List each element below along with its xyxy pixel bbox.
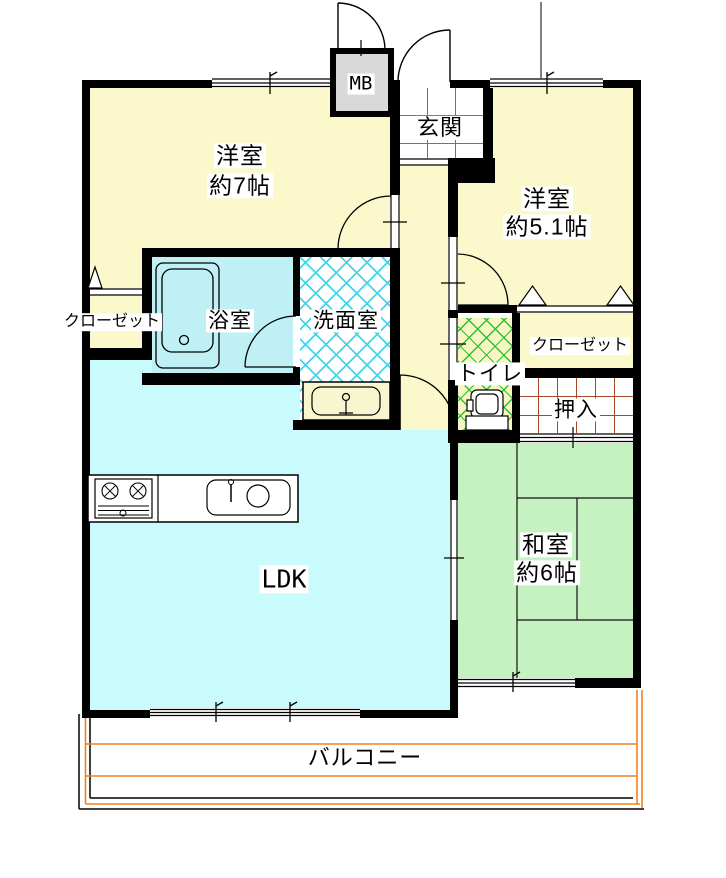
wall-ldk-japanese-2 bbox=[450, 620, 458, 678]
label-japanese-name: 和室 bbox=[520, 532, 572, 557]
wall-japanese-top bbox=[448, 430, 520, 443]
oshiire-fusuma-band bbox=[520, 433, 633, 443]
wall-left bbox=[82, 80, 90, 718]
closet-right-door-band bbox=[517, 305, 633, 313]
label-closet-right: クローゼット bbox=[530, 337, 630, 355]
room-western7-floor-arm bbox=[90, 248, 142, 288]
wall-bath-left bbox=[142, 248, 152, 360]
wall-ldk-bottom-right bbox=[360, 710, 458, 718]
label-meter-box: MB bbox=[348, 74, 375, 95]
label-entrance: 玄関 bbox=[415, 116, 465, 140]
label-toilet: トイレ bbox=[455, 362, 525, 385]
floorplan: 洋室 約7帖 MB 玄関 洋室 約5.1帖 クローゼット 浴室 洗面室 トイレ … bbox=[0, 0, 726, 878]
wall-right bbox=[633, 80, 641, 688]
wall-bath-bottom bbox=[142, 373, 300, 385]
label-western7-name: 洋室 bbox=[214, 143, 266, 168]
wall-japanese-bottom bbox=[575, 678, 641, 688]
entrance-step bbox=[400, 158, 448, 166]
wall-corridor-right-2 bbox=[448, 310, 458, 318]
wall-closet-left-bottom bbox=[90, 348, 152, 360]
label-closet-left: クローゼット bbox=[62, 313, 162, 331]
closet-left-door-band bbox=[90, 288, 142, 296]
wall-corridor-right-1 bbox=[448, 183, 458, 237]
wall-corridor-right-3 bbox=[448, 380, 458, 430]
label-western51-area: 約5.1帖 bbox=[504, 214, 591, 239]
washroom-floor bbox=[300, 257, 393, 420]
wall-corner-block bbox=[448, 158, 495, 183]
wall-closet-right-bottom bbox=[520, 368, 633, 378]
window-western7 bbox=[212, 78, 330, 88]
ldk-floor-b bbox=[90, 385, 300, 430]
room-western51-floor-west bbox=[458, 183, 490, 305]
window-western51 bbox=[490, 78, 603, 88]
label-balcony: バルコニー bbox=[306, 746, 425, 770]
ldk-japanese-slider-band bbox=[450, 500, 458, 620]
door-opening-western51 bbox=[448, 237, 458, 310]
wall-ldk-japanese-1 bbox=[450, 443, 458, 500]
wall-washroom-bottom bbox=[293, 420, 400, 430]
wall-entrance-right bbox=[483, 82, 493, 162]
wall-top-1 bbox=[82, 80, 212, 88]
wall-western51-bottom bbox=[458, 305, 517, 313]
wall-western7-bottom bbox=[142, 248, 400, 257]
door-opening-bath bbox=[293, 316, 300, 367]
label-western7-area: 約7帖 bbox=[207, 173, 273, 198]
label-western51-name: 洋室 bbox=[521, 186, 573, 211]
label-ldk: LDK bbox=[259, 565, 308, 593]
corridor-floor bbox=[400, 158, 448, 430]
wall-ldk-bottom-left bbox=[82, 710, 150, 718]
window-japanese bbox=[458, 678, 575, 688]
label-washroom: 洗面室 bbox=[311, 309, 381, 332]
label-japanese-area: 約6帖 bbox=[514, 560, 580, 585]
label-bath: 浴室 bbox=[206, 309, 254, 332]
entrance-door-opening bbox=[400, 80, 450, 88]
label-oshiire: 押入 bbox=[552, 398, 600, 421]
door-opening-western7 bbox=[390, 195, 400, 248]
window-ldk bbox=[150, 708, 360, 716]
